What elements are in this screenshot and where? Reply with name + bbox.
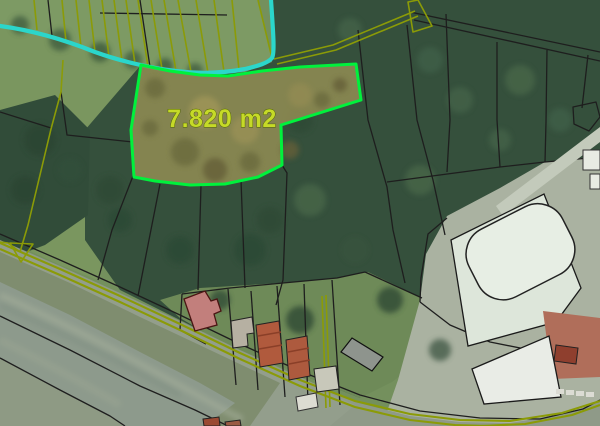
red-roof-house-a: [256, 321, 283, 367]
map-viewport[interactable]: 7.820 m2: [0, 0, 600, 426]
parcel-area-label: 7.820 m2: [167, 105, 277, 133]
small-building-right-2: [590, 174, 600, 189]
shed-bottom-1: [203, 417, 220, 426]
aerial-map-canvas[interactable]: 7.820 m2: [0, 0, 600, 426]
red-structure: [554, 345, 578, 364]
small-building-right-1: [583, 150, 600, 170]
gray-outbuilding: [314, 366, 339, 392]
red-roof-house-b: [286, 336, 310, 380]
